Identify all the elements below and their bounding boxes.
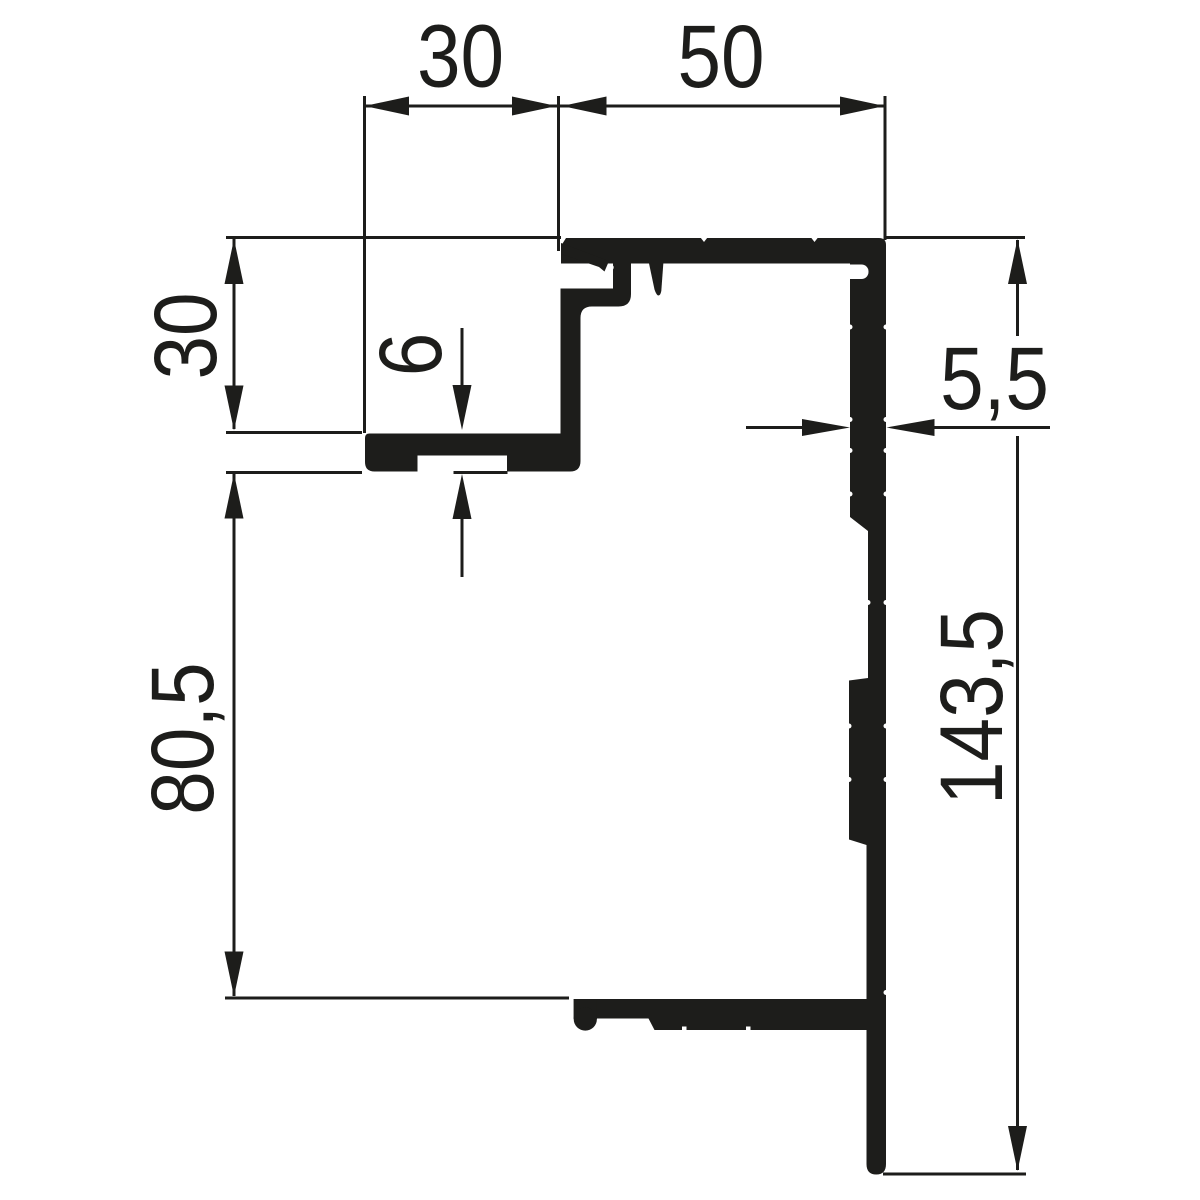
svg-text:143,5: 143,5	[921, 609, 1021, 805]
svg-text:50: 50	[677, 6, 764, 106]
svg-text:5,5: 5,5	[940, 328, 1049, 428]
svg-text:6: 6	[360, 333, 460, 377]
svg-text:30: 30	[417, 6, 504, 106]
svg-text:80,5: 80,5	[132, 662, 232, 814]
svg-text:30: 30	[135, 292, 235, 379]
